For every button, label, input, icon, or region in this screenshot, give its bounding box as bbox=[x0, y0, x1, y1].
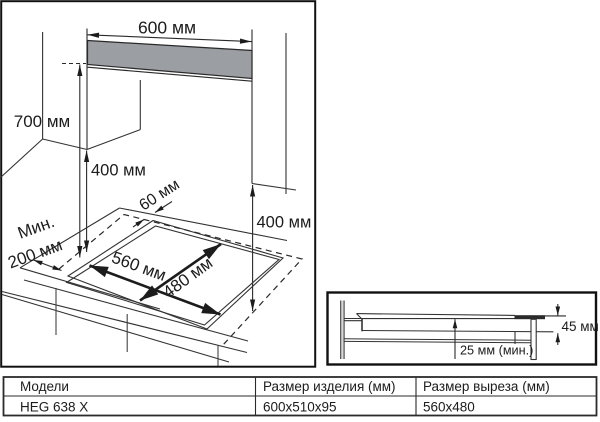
svg-text:700 мм: 700 мм bbox=[14, 112, 70, 131]
svg-text:45 мм: 45 мм bbox=[562, 319, 599, 334]
svg-text:HEG 638 X: HEG 638 X bbox=[20, 400, 88, 415]
svg-text:560x480: 560x480 bbox=[423, 400, 475, 415]
svg-text:400 мм: 400 мм bbox=[91, 162, 146, 180]
svg-text:600 мм: 600 мм bbox=[138, 18, 196, 38]
svg-text:600x510x95: 600x510x95 bbox=[263, 400, 337, 415]
svg-text:25 мм (мин.): 25 мм (мин.) bbox=[460, 344, 533, 358]
svg-text:Размер выреза (мм): Размер выреза (мм) bbox=[423, 379, 550, 394]
svg-text:Модели: Модели bbox=[20, 379, 69, 394]
svg-text:Размер изделия (мм): Размер изделия (мм) bbox=[263, 379, 396, 394]
svg-text:400 мм: 400 мм bbox=[257, 214, 312, 232]
